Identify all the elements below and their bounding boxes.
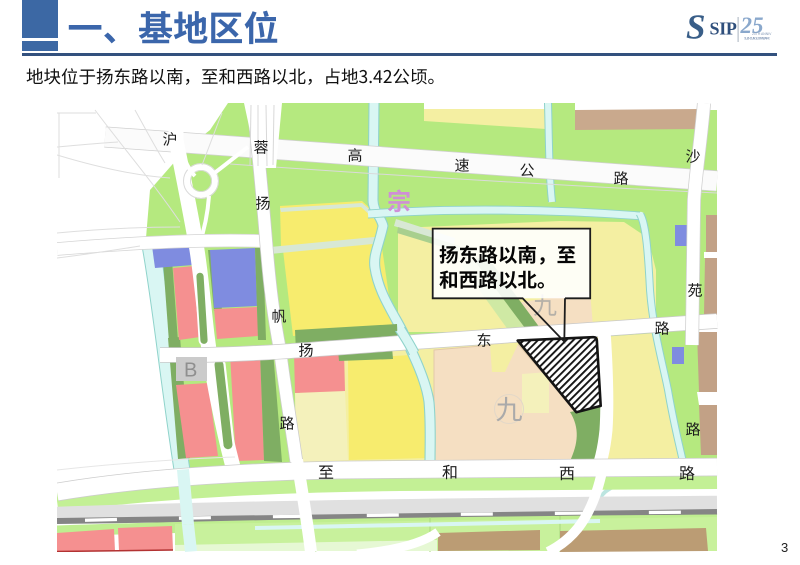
svg-text:20TH ANNIV: 20TH ANNIV [752,32,772,36]
svg-text:S: S [686,8,705,47]
svg-text:SUZHOU INDUSTRIAL PARK: SUZHOU INDUSTRIAL PARK [744,37,771,41]
svg-text:B: B [184,360,197,382]
svg-text:SIP: SIP [710,19,737,39]
